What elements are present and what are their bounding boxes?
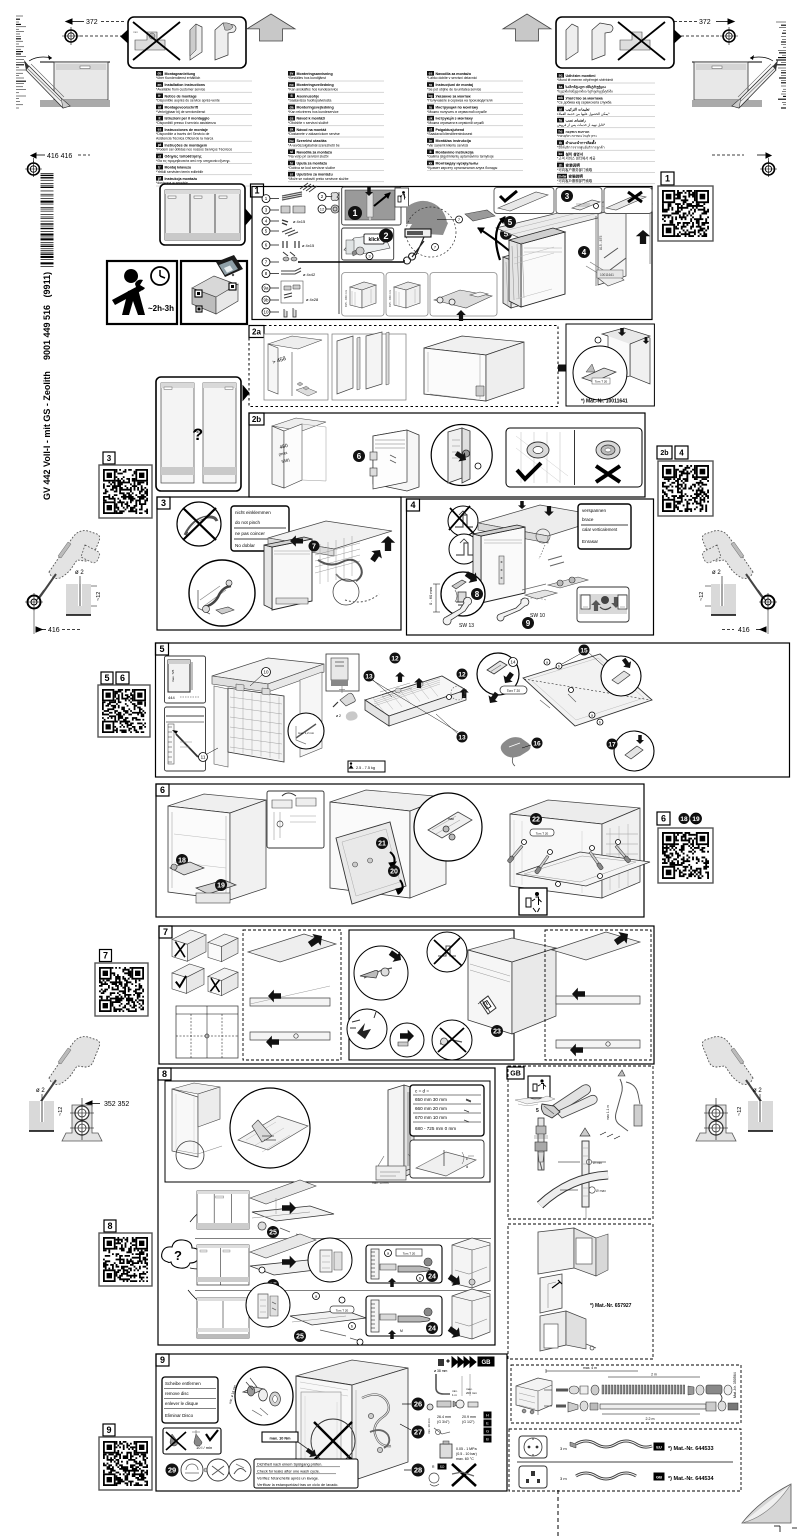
svg-text:13: 13 [458,734,466,741]
svg-text:5: 5 [536,1108,539,1114]
svg-text:4: 4 [582,248,587,257]
svg-text:*über Kundendienst erhältlich: *über Kundendienst erhältlich [156,76,200,80]
svg-text:372: 372 [86,19,98,26]
svg-text:2 m: 2 m [651,1373,657,1377]
svg-text:c: c [466,1157,468,1161]
svg-text:4: 4 [679,448,684,457]
svg-text:ø 4x28: ø 4x28 [306,297,319,302]
svg-text:*Var saņemt klientu servisā: *Var saņemt klientu servisā [427,143,468,147]
svg-text:GB: GB [510,1071,521,1078]
svg-text:max. 10 Nm: max. 10 Nm [269,1437,291,1441]
svg-text:16: 16 [533,740,541,747]
svg-text:*Može se nabaviti preko servis: *Može se nabaviti preko servisne službe [288,177,349,181]
svg-text:815 - 860 mm: 815 - 860 mm [344,289,348,307]
svg-text:mm: mm [133,30,138,34]
svg-text:*可向客户服务部门索取: *可向客户服务部门索取 [557,167,593,172]
svg-text:9001 449 516 (9911): 9001 449 516 (9911) [42,272,52,360]
svg-text:*Kan anskaffes hos kundeservic: *Kan anskaffes hos kundeservice [288,87,338,91]
svg-text:uk: uk [429,117,433,121]
svg-text:3: 3 [107,454,112,463]
svg-text:hu: hu [289,139,293,143]
svg-text:0.05 - 1 MPa: 0.05 - 1 MPa [456,1447,477,1451]
svg-text:5: 5 [159,644,164,654]
svg-text:~12: ~12 [58,1107,64,1116]
svg-text:~12: ~12 [737,1107,743,1116]
svg-text:max 1.1 m: max 1.1 m [606,1105,610,1120]
svg-text:c = d =: c = d = [415,1089,429,1094]
svg-text:*Disponibili presso il servizi: *Disponibili presso il servizio assisten… [156,121,216,125]
svg-text:sl: sl [290,150,293,154]
svg-text:3: 3 [565,192,570,201]
svg-text:max. 60 °C: max. 60 °C [456,1457,474,1461]
svg-text:7: 7 [103,951,108,961]
svg-text:GB: GB [482,1360,492,1366]
svg-text:~2h-3h: ~2h-3h [148,304,174,313]
svg-text:5: 5 [508,218,513,227]
svg-text:ø 2: ø 2 [36,1088,45,1094]
svg-text:23: 23 [493,1029,501,1036]
svg-text:nl: nl [158,105,161,109]
svg-text:4: 4 [410,500,415,510]
svg-text:*) Mat.-Nr. 644534: *) Mat.-Nr. 644534 [668,1476,714,1482]
svg-text:M: M [400,1329,403,1333]
svg-text:a: a [546,660,548,664]
svg-text:9a: 9a [263,286,269,291]
svg-text:ko: ko [559,152,563,156]
svg-text:2a: 2a [252,327,261,336]
svg-text:da: da [290,105,294,109]
svg-text:8: 8 [475,590,480,599]
svg-text:14: 14 [510,660,516,665]
svg-text:*Kan rekvireres hos kundeservi: *Kan rekvireres hos kundeservice [288,110,339,114]
svg-text:ø 4x42: ø 4x42 [303,272,316,277]
svg-text:lv: lv [429,139,432,143]
svg-text:sv: sv [290,72,294,76]
svg-text:6: 6 [120,673,125,683]
svg-text:calar verticalement: calar verticalement [582,527,618,532]
svg-text:2: 2 [383,231,388,241]
svg-text:b: b [599,720,601,724]
svg-text:ru: ru [429,105,432,109]
svg-text:5: 5 [104,673,109,683]
svg-text:650 mm 30 mm: 650 mm 30 mm [415,1097,447,1102]
svg-text:*Podem ser obtidas nos nossos: *Podem ser obtidas nos nossos Serviços T… [156,148,232,152]
svg-text:es: es [429,72,433,76]
svg-text:ø 4x15: ø 4x15 [302,243,315,248]
svg-text:SO: SO [440,1465,445,1469]
svg-text:安装说明: 安装说明 [566,163,581,168]
svg-text:*Dostanete v zákazníckom servi: *Dostanete v zákazníckom servise [288,132,340,136]
svg-text:*) Mat.-Nr. 10011641: *) Mat.-Nr. 10011641 [581,399,628,405]
svg-text:enlever le disque: enlever le disque [165,1401,199,1406]
svg-text:(0.5 - 10 bar): (0.5 - 10 bar) [456,1452,477,1456]
svg-text:Ø min: Ø min [593,1161,602,1165]
svg-text:20.9 mm: 20.9 mm [462,1415,476,1419]
svg-text:*Yetkili servisten temin edile: *Yetkili servisten temin edilebilir [156,170,204,174]
svg-text:*可向客戶服務部門索取: *可向客戶服務部門索取 [557,178,593,183]
svg-text:*Saadaval klienditeenindusest: *Saadaval klienditeenindusest [427,132,472,136]
svg-text:*Saatavissa huoltopalvelusta: *Saatavissa huoltopalvelusta [288,99,331,103]
svg-text:*Se pot obţine de la unitatea: *Se pot obţine de la unitatea service [427,87,481,91]
svg-text:11: 11 [201,755,206,760]
svg-text:1: 1 [352,208,357,218]
svg-text:10: 10 [263,670,269,675]
svg-text:670 mm 10 mm: 670 mm 10 mm [415,1115,447,1120]
svg-text:12: 12 [391,655,399,662]
svg-text:Scheibe entfernen: Scheibe entfernen [165,1381,201,1386]
svg-text:0 - 60 mm: 0 - 60 mm [428,586,433,605]
svg-text:Vérifiez l'étanchéité après un: Vérifiez l'étanchéité après un lavage. [257,1477,319,1481]
svg-text:Asistencia Técnica Oficial de: Asistencia Técnica Oficial de la marca [156,136,213,140]
svg-text:*Obdržíte v servisní službě: *Obdržíte v servisní službě [288,121,328,125]
svg-text:17: 17 [608,741,616,748]
svg-text:sq: sq [559,74,563,78]
svg-text:(G 3/4"): (G 3/4") [437,1420,449,1424]
svg-text:*Available from customer servi: *Available from customer service [156,87,205,91]
svg-text:24: 24 [428,1326,436,1333]
svg-text:el: el [158,154,161,158]
svg-text:444: 444 [168,695,175,700]
svg-text:9: 9 [106,1425,111,1435]
svg-text:klick: klick [368,237,379,243]
svg-text:Mat.-Nr. 350564: Mat.-Nr. 350564 [733,1372,737,1398]
svg-text:d: d [466,1165,468,1169]
svg-text:18: 18 [680,816,688,823]
svg-text:6: 6 [160,785,165,795]
svg-text:do not pinch: do not pinch [235,520,260,525]
svg-text:*Dobiva se kod servisne službe: *Dobiva se kod servisne službe [288,166,335,170]
svg-text:verspannen: verspannen [582,508,606,513]
svg-text:352 352: 352 352 [104,1101,129,1108]
svg-text:a: a [591,713,593,717]
svg-text:ø 2: ø 2 [712,570,721,576]
svg-text:3: 3 [161,498,166,508]
svg-text:*Се добива кај сервисната служ: *Се добива кај сервисната служба [557,101,611,105]
svg-text:*ხელმისაწვდომია სერვისცენტრში: *ხელმისაწვდომია სერვისცენტრში [557,89,613,93]
svg-text:28: 28 [414,1466,422,1475]
svg-text:19: 19 [217,883,225,890]
svg-text:ø 2: ø 2 [753,1088,762,1094]
svg-text:Enrasar: Enrasar [582,539,599,544]
svg-text:E: E [486,1421,489,1426]
svg-text:B: B [486,1437,489,1442]
svg-text:815 - 875: 815 - 875 [599,236,603,250]
svg-text:2.5 - 7.5 kg: 2.5 - 7.5 kg [356,766,375,770]
svg-text:25: 25 [269,1230,277,1237]
svg-text:No doblar: No doblar [235,543,255,548]
svg-text:22: 22 [532,817,540,824]
svg-text:2b: 2b [660,450,668,457]
svg-text:12: 12 [458,671,466,678]
svg-text:680 - 725 mm 0 mm: 680 - 725 mm 0 mm [415,1126,456,1131]
svg-text:*고객 서비스 센터에서 제공: *고객 서비스 센터에서 제공 [557,156,595,161]
svg-text:200 mm: 200 mm [466,1391,477,1395]
svg-text:GB: GB [656,1475,662,1480]
svg-text:*Қызмет көрсету орталығынан ал: *Қызмет көрсету орталығынан алуға болады [427,166,498,170]
svg-text:Torx T 20: Torx T 20 [507,689,520,693]
svg-text:kk: kk [429,161,433,165]
svg-text:1 m: 1 m [452,1393,458,1397]
svg-text:25: 25 [296,1334,304,1341]
svg-text:*ניתן לקבל בשירות הלקוחות: *ניתן לקבל בשירות הלקוחות [557,134,597,138]
svg-text:설치 설명서: 설치 설명서 [566,151,584,156]
svg-text:SW 13: SW 13 [459,623,474,629]
svg-text:(G 1/2"): (G 1/2") [462,1420,474,1424]
svg-text:b: b [558,664,560,668]
svg-text:Eliminar Disco: Eliminar Disco [165,1413,194,1418]
svg-text:*Можна отримати в сервісній сл: *Можна отримати в сервісній службі [427,121,484,125]
svg-text:10011641: 10011641 [600,273,614,277]
svg-text:6: 6 [661,814,666,824]
svg-text:*) Mat.-Nr. 657927: *) Mat.-Nr. 657927 [590,1303,632,1309]
svg-text:9b: 9b [263,298,269,303]
svg-text:max. 10 mm: max. 10 mm [372,1181,389,1185]
svg-text:Torx T 20: Torx T 20 [536,832,549,836]
svg-text:fa: fa [559,119,562,123]
svg-text:sk: sk [290,128,294,132]
svg-text:660 mm 20 mm: 660 mm 20 mm [415,1106,447,1111]
svg-text:24: 24 [428,1274,436,1281]
svg-text:*มีให้บริการจากศูนย์บริการลูกค: *มีให้บริการจากศูนย์บริการลูกค้า [557,144,605,149]
svg-text:*Na voljo pri servisni službi: *Na voljo pri servisni službi [288,155,329,159]
svg-text:Torx T 20: Torx T 20 [595,380,608,384]
svg-text:*Mund të merren nëpërmjet shër: *Mund të merren nëpërmjet shërbimit [557,78,613,82]
svg-text:10: 10 [263,310,269,315]
svg-text:pl: pl [158,177,161,181]
svg-text:Verificar la estanqueidad tras: Verificar la estanqueidad tras un ciclo … [257,1483,338,1487]
svg-text:max. 4 m: max. 4 m [583,1366,597,1370]
svg-text:19: 19 [692,816,700,823]
svg-text:372: 372 [699,19,711,26]
svg-text:2.2 m: 2.2 m [646,1417,655,1421]
svg-text:nicht einklemmen: nicht einklemmen [235,510,271,515]
svg-text:20: 20 [390,869,398,876]
svg-text:cs: cs [290,117,294,121]
svg-text:G: G [486,1429,489,1434]
svg-text:قابل تهیه از خدمات پس از فروش*: قابل تهیه از خدمات پس از فروش* [557,123,606,127]
svg-text:29: 29 [168,1466,176,1475]
svg-text:ne pas coincer: ne pas coincer [235,531,265,536]
svg-text:*Verkrijgbaar bij de servicedi: *Verkrijgbaar bij de servicedienst [156,110,205,114]
svg-text:*Получавате в сервиза на произ: *Получавате в сервиза на производителя [427,99,493,103]
svg-text:~12: ~12 [96,592,102,601]
svg-text:es: es [158,128,162,132]
svg-text:remove disc: remove disc [165,1391,189,1396]
svg-text:~12: ~12 [699,592,705,601]
svg-text:815 - 860 mm: 815 - 860 mm [388,289,392,307]
svg-text:7: 7 [312,544,316,551]
svg-text:th: th [559,141,562,145]
svg-text:*) Mat.-Nr. 644533: *) Mat.-Nr. 644533 [668,1446,714,1452]
svg-text:*Disponible auprès du service: *Disponible auprès du service après-vent… [156,99,220,103]
svg-text:ø 38 mm: ø 38 mm [434,1369,448,1373]
svg-text:ø 4x15: ø 4x15 [293,219,306,224]
svg-text:no: no [289,83,293,87]
svg-text:3 m: 3 m [560,1476,567,1481]
svg-text:brace: brace [582,517,594,522]
svg-text:ro: ro [429,83,432,87]
svg-text:10 l / min: 10 l / min [196,1445,212,1450]
svg-text:*Θα τις προμηθευτείτε από την: *Θα τις προμηθευτείτε από την υπηρεσία ε… [156,159,230,163]
svg-text:1: 1 [665,174,670,184]
svg-text:3 m: 3 m [560,1446,567,1451]
svg-text:26.4 mm: 26.4 mm [437,1415,451,1419]
svg-text:ø 2: ø 2 [336,714,341,718]
svg-text:Dichtheit nach einem Spülgang: Dichtheit nach einem Spülgang prüfen. [257,1463,322,1467]
svg-text:Ø max: Ø max [596,1189,606,1193]
svg-text:SW 10: SW 10 [530,613,545,619]
svg-text:Torx T 20: Torx T 20 [403,1252,416,1256]
svg-text:max. 725: max. 725 [171,669,175,682]
svg-text:*Можно получить в сервисной сл: *Можно получить в сервисной службе [427,110,487,114]
svg-text:12: 12 [320,206,325,211]
svg-text:8: 8 [107,1221,112,1231]
svg-text:ø 2: ø 2 [75,570,84,576]
svg-text:*Lahko dobite v servisni delav: *Lahko dobite v servisni delavnici [427,76,477,80]
svg-text:he: he [559,130,563,134]
svg-text:7: 7 [163,927,168,937]
svg-text:zh: zh [559,163,563,167]
svg-text:13: 13 [365,673,373,680]
svg-text:يمكن الحصول عليها من خدمة العم: يمكن الحصول عليها من خدمة العملاء* [557,112,610,116]
svg-text:*Galima įsigyti klientų aptarn: *Galima įsigyti klientų aptarnavimo tarn… [427,155,494,159]
svg-text:bg: bg [428,94,432,98]
svg-text:ka: ka [559,85,563,89]
svg-text:?: ? [174,1248,182,1263]
svg-text:zh-tw: zh-tw [558,175,567,179]
svg-text:416: 416 [48,627,60,634]
svg-text:安裝說明: 安裝說明 [569,174,584,179]
svg-text:9: 9 [160,1355,165,1365]
svg-text:GV 442 Voll-I - mit GS - Zeoli: GV 442 Voll-I - mit GS - Zeolith [42,371,52,500]
svg-text:H: H [486,1413,489,1418]
svg-text:fi: fi [290,94,292,98]
svg-text:416: 416 [738,627,750,634]
svg-text:mk: mk [558,96,563,100]
svg-text:6: 6 [357,452,362,461]
svg-text:8: 8 [162,1069,167,1079]
svg-text:416 416: 416 416 [47,153,72,160]
svg-text:27: 27 [414,1428,422,1437]
svg-text:de: de [158,72,162,76]
svg-text:2b: 2b [252,415,261,424]
svg-text:21: 21 [378,841,386,848]
svg-text:1: 1 [254,186,259,196]
svg-text:Torx T 20: Torx T 20 [336,1309,349,1313]
svg-text:9: 9 [526,619,531,628]
svg-text:*Beställes hos kundtjänst: *Beställes hos kundtjänst [288,76,326,80]
svg-text:max. 1,2 mm: max. 1,2 mm [298,731,315,735]
svg-text:Check for leaks after one wash: Check for leaks after one wash cycle. [257,1470,320,1474]
svg-text:26: 26 [414,1400,422,1409]
svg-text:en: en [158,83,162,87]
svg-text:min. 10 mm: min. 10 mm [427,1418,431,1434]
svg-text:max: max [448,817,454,821]
svg-text:?: ? [193,425,203,444]
svg-text:15: 15 [580,647,588,654]
svg-text:*A vevőszolgálatnál szerezhető: *A vevőszolgálatnál szerezhető be [288,143,340,147]
svg-text:EU: EU [656,1445,662,1450]
